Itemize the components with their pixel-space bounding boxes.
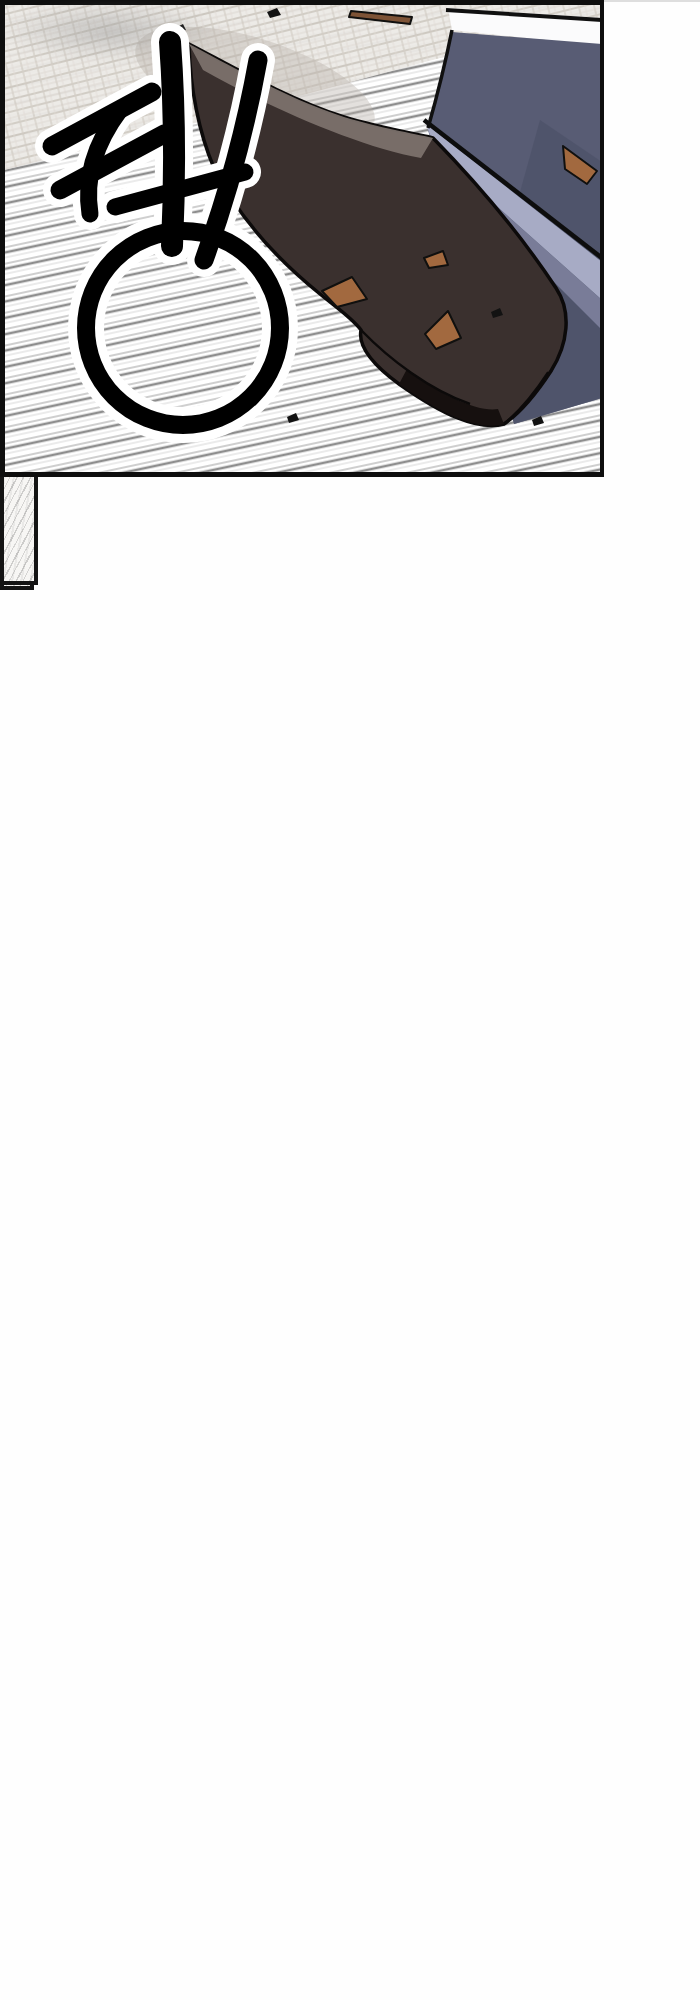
- webtoon-page: 가장 빠른 웹툰 미리보기 구글검색 뉴토끼 가장 빠른 웹툰 미리보기 구글검…: [0, 0, 700, 2000]
- sfx-kwang: [0, 0, 310, 480]
